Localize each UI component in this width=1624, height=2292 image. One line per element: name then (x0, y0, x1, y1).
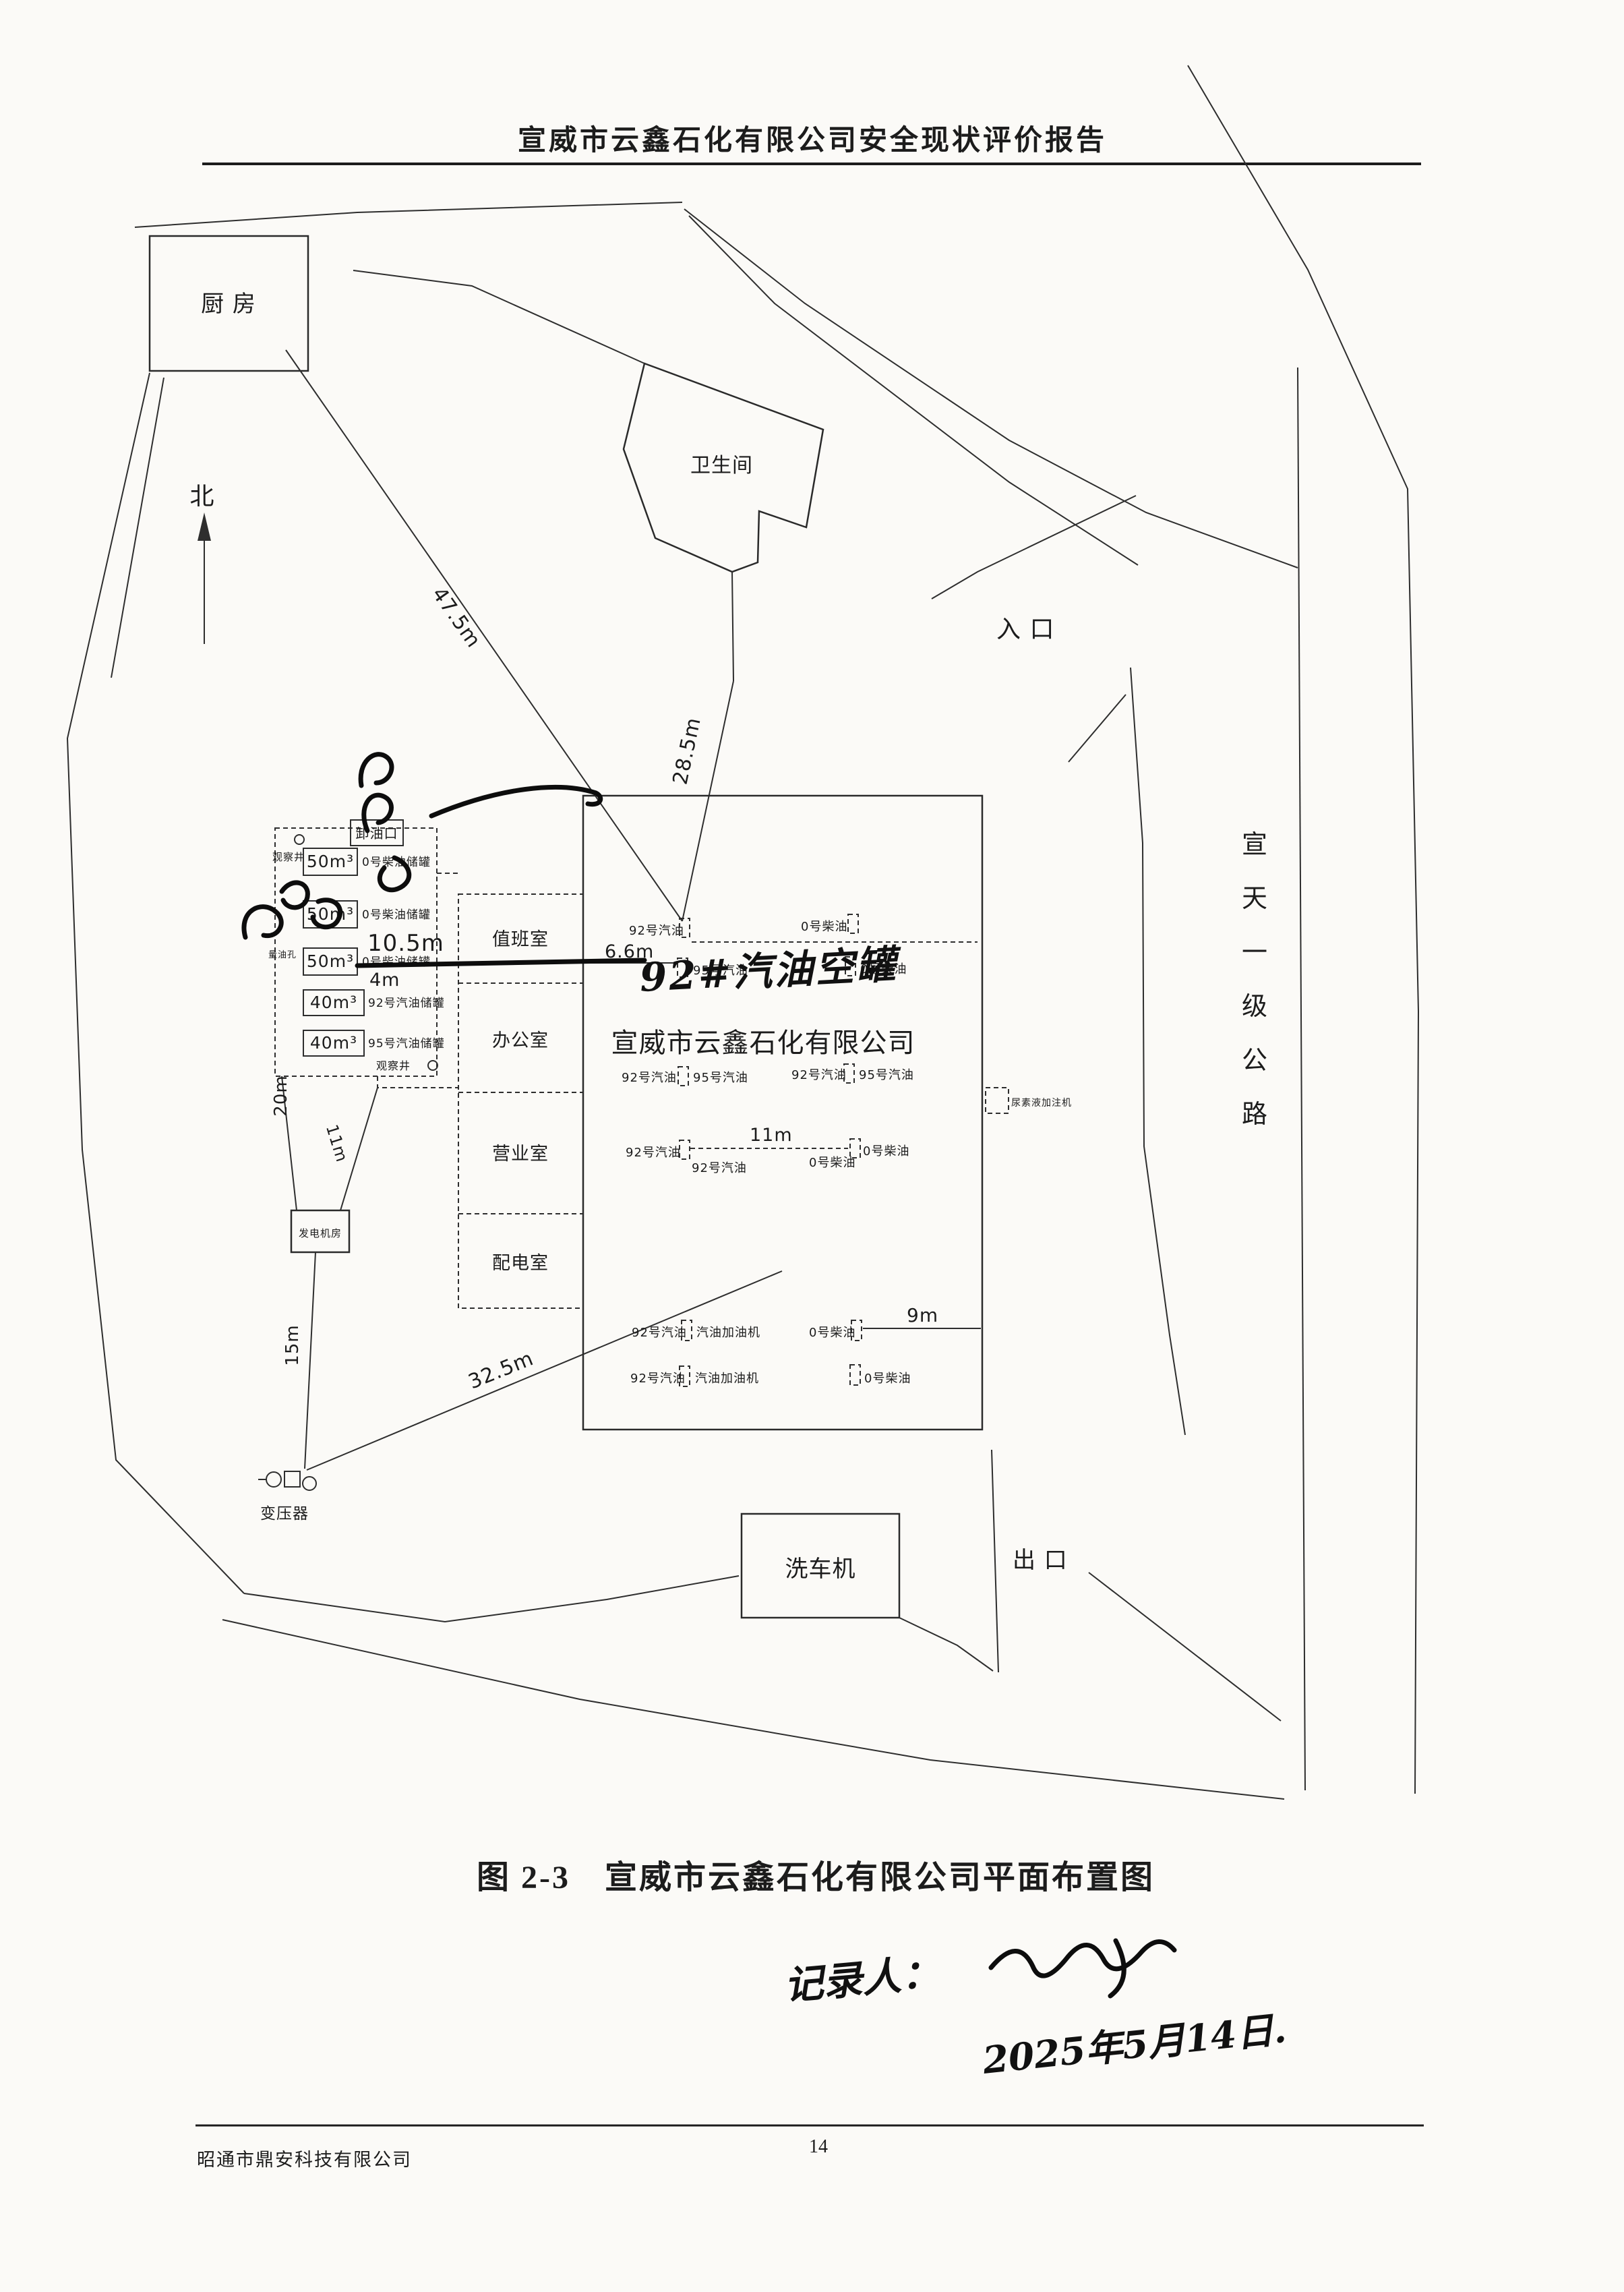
north-label: 北 (189, 483, 214, 510)
svg-text:级: 级 (1242, 991, 1268, 1021)
toilet-building: 卫生间 (624, 363, 823, 681)
room-power: 配电室 (492, 1253, 549, 1274)
urea-machine-label: 尿素液加注机 (1011, 1098, 1072, 1109)
svg-text:公: 公 (1242, 1045, 1268, 1075)
distance-lines: 47.5m 28.5m (286, 350, 733, 921)
fuel-dispenser-icon (850, 1139, 860, 1158)
fuel-label-92: 92号汽油 (626, 1146, 681, 1160)
urea-machine-icon (986, 1088, 1009, 1113)
dim-32-5m: 32.5m (465, 1347, 537, 1394)
unloading-port-label: 卸油口 (356, 825, 398, 842)
pump-label: 汽油加油机 (695, 1372, 759, 1386)
observation-well-top-label: 观察井 (272, 851, 305, 863)
north-arrow-head (198, 512, 211, 541)
room-office: 办公室 (492, 1030, 549, 1051)
fuel-label-0: 0号柴油 (801, 920, 847, 934)
canopy-company-name: 宣威市云鑫石化有限公司 (611, 1028, 915, 1059)
observation-well-icon (295, 835, 304, 844)
tank-row: 50m³ 0号柴油储罐 (303, 901, 431, 928)
fuel-label-0: 0号柴油 (863, 1144, 909, 1158)
dim-9m: 9m (907, 1304, 938, 1326)
room-duty: 值班室 (492, 929, 549, 950)
tank-label: 95号汽油储罐 (368, 1037, 445, 1051)
dim-20m: 20m (271, 1075, 291, 1116)
tank-volume: 50m³ (307, 951, 354, 971)
dim-10-5m: 10.5m (367, 930, 444, 957)
transformer-label: 变压器 (260, 1505, 309, 1523)
fuel-label-92: 92号汽油 (630, 1372, 686, 1386)
tank-label: 0号柴油储罐 (362, 908, 431, 922)
tank-row: 50m³ 0号柴油储罐 (303, 848, 431, 875)
toilet-label: 卫生间 (690, 454, 753, 477)
fuel-label-95: 95号汽油 (693, 1071, 748, 1085)
fuel-label-0: 0号柴油 (809, 1156, 855, 1170)
recorder-label: 记录人： (782, 1949, 942, 2009)
footer-company: 昭通市鼎安科技有限公司 (197, 2150, 412, 2170)
tank-change-note: 92#汽油空罐 (638, 941, 903, 1001)
fuel-label-0: 0号柴油 (809, 1326, 855, 1340)
canopy: 92号汽油 0号柴油 6.6m 95号汽油 0号柴油 宣威市云鑫石化有限公司 9… (583, 796, 1072, 1430)
report-header-title: 宣威市云鑫石化有限公司安全现状评价报告 (518, 124, 1107, 156)
fuel-label-92: 92号汽油 (629, 924, 684, 938)
pump-label: 汽油加油机 (696, 1326, 760, 1340)
handwritten-date: 2025年5月14日. (980, 2007, 1288, 2082)
car-washer-label: 洗车机 (785, 1556, 856, 1583)
observation-well-icon (428, 1061, 438, 1070)
fuel-dispenser-icon (848, 914, 858, 933)
dim-15m: 15m (282, 1324, 303, 1365)
figure-caption: 图 2-3 宣威市云鑫石化有限公司平面布置图 (477, 1860, 1155, 1896)
tank-label: 92号汽油储罐 (368, 997, 445, 1010)
fuel-label-95: 95号汽油 (859, 1068, 914, 1082)
dim-47-5m: 47.5m (427, 583, 485, 653)
rooms-building: 值班室 办公室 营业室 配电室 (458, 894, 583, 1308)
tank-volume: 40m³ (310, 993, 357, 1012)
fuel-label-92: 92号汽油 (692, 1161, 747, 1175)
kitchen-building: 厨 房 (150, 236, 308, 371)
svg-text:路: 路 (1242, 1099, 1268, 1129)
tank-row: 40m³ 95号汽油储罐 (303, 1030, 445, 1056)
fuel-label-92: 92号汽油 (622, 1071, 677, 1085)
north-arrow: 北 (189, 483, 214, 644)
site-boundary-lines (67, 65, 1418, 1799)
car-washer-building: 洗车机 (742, 1514, 899, 1618)
site-plan-figure: 宣威市云鑫石化有限公司安全现状评价报告 北 厨 房 (0, 0, 1624, 2292)
svg-text:宣: 宣 (1242, 829, 1268, 859)
tank-row: 40m³ 92号汽油储罐 (303, 990, 445, 1016)
fuel-label-92: 92号汽油 (791, 1068, 847, 1082)
highway-label: 宣 天 一 级 公 路 (1242, 829, 1268, 1129)
dim-11m-yard: 11m (322, 1122, 351, 1165)
entrance-label: 入 口 (996, 616, 1054, 643)
svg-text:天: 天 (1242, 883, 1268, 913)
fuel-dispenser-icon (850, 1365, 860, 1385)
tank-volume: 40m³ (310, 1033, 357, 1053)
generator-room-label: 发电机房 (299, 1227, 342, 1239)
exit-label: 出 口 (1013, 1547, 1068, 1574)
transformer-icon (258, 1471, 316, 1490)
west-yard: 20m 11m 发电机房 15m 变压器 32.5m (258, 1075, 782, 1523)
dim-28-5m: 28.5m (669, 715, 706, 787)
report-page: 宣威市云鑫石化有限公司安全现状评价报告 北 厨 房 (0, 0, 1624, 2292)
fuel-label-0: 0号柴油 (864, 1372, 911, 1386)
handwritten-signature: 记录人： 2025年5月14日. (782, 1941, 1288, 2082)
svg-text:一: 一 (1242, 937, 1268, 967)
fuel-dispenser-icon (678, 1067, 688, 1086)
footer-page-number: 14 (809, 2136, 828, 2157)
dim-4m: 4m (369, 970, 400, 991)
dim-11m: 11m (750, 1125, 793, 1146)
observation-well-bottom-label: 观察井 (376, 1059, 411, 1072)
kitchen-label: 厨 房 (201, 291, 256, 318)
room-business: 营业室 (492, 1144, 549, 1165)
gauge-well-label: 量油孔 (268, 950, 297, 960)
tank-volume: 50m³ (307, 852, 354, 871)
tank-farm: 卸油口 观察井 50m³ 0号柴油储罐 50m³ 0号柴油储罐 10.5m 50… (268, 820, 458, 1088)
fuel-label-92: 92号汽油 (632, 1326, 687, 1340)
fuel-dispenser-icon (680, 1140, 690, 1159)
